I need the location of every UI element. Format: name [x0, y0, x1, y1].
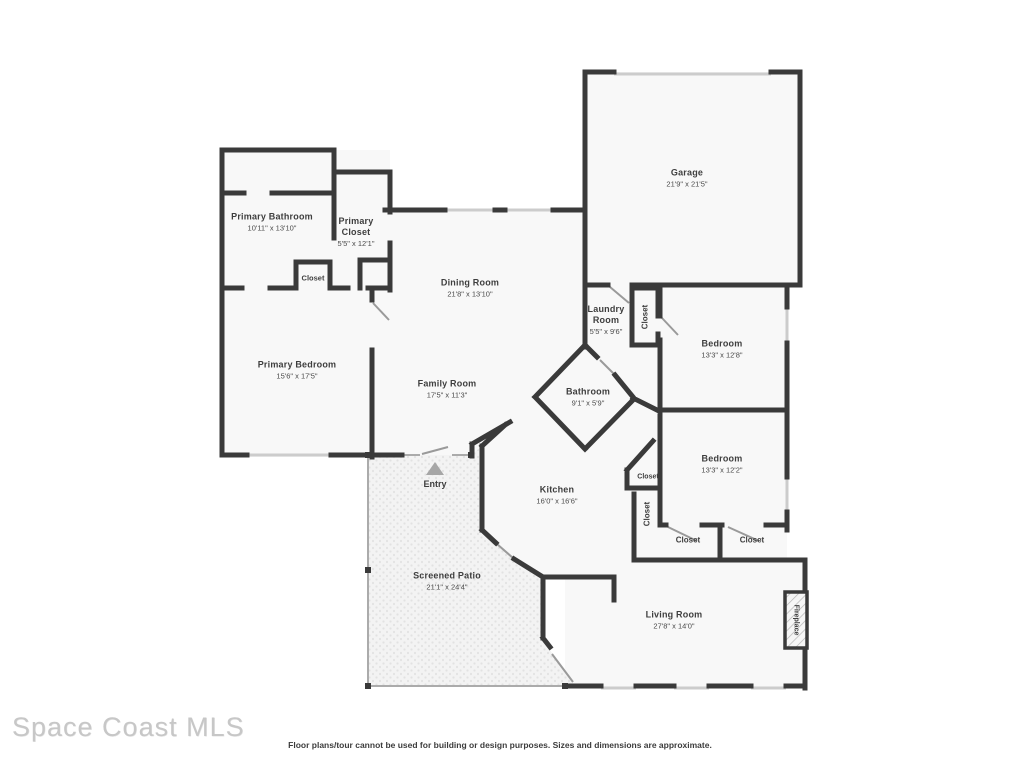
floorplan-drawing	[0, 0, 1024, 768]
entry-label: Entry	[423, 479, 446, 489]
disclaimer-text: Floor plans/tour cannot be used for buil…	[288, 740, 712, 750]
floorplan-page: Primary Bathroom 10'11" x 13'10" Primary…	[0, 0, 1024, 768]
closet-label-corner: Closet	[637, 474, 658, 481]
closet-label-hall-upper: Closet	[641, 305, 650, 329]
closet-label-hall-lower: Closet	[643, 502, 652, 526]
closet-label-primary-bath: Closet	[302, 274, 325, 283]
mls-watermark: Space Coast MLS	[12, 712, 245, 743]
closet-label-bedroom2-left: Closet	[676, 536, 700, 545]
fireplace-label: Fireplace	[793, 605, 800, 636]
closet-label-bedroom2-right: Closet	[740, 536, 764, 545]
entry-arrow-icon	[426, 462, 444, 475]
